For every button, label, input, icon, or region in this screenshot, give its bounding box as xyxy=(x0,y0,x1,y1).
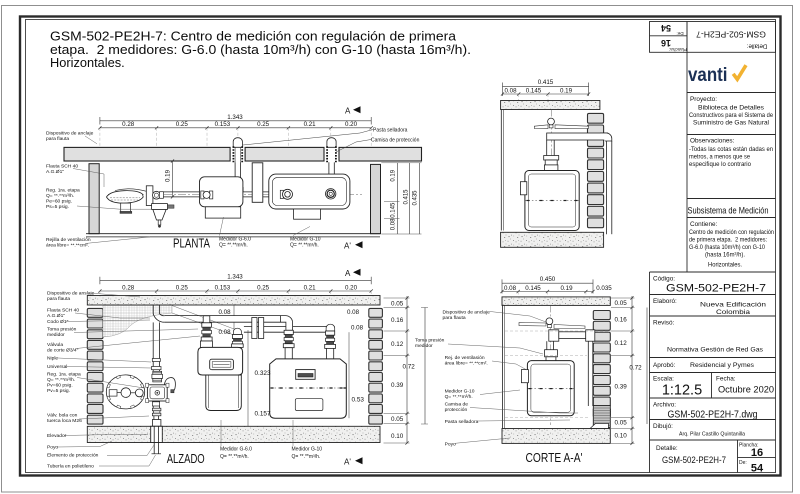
svg-text:0.19: 0.19 xyxy=(391,169,397,181)
svg-text:Rejilla de ventilación: Rejilla de ventilación xyxy=(46,237,91,243)
svg-text:de corte Ø3/4": de corte Ø3/4" xyxy=(47,348,79,354)
svg-text:GSM-502-PE2H-7: GSM-502-PE2H-7 xyxy=(662,455,726,465)
svg-text:Válvula: Válvula xyxy=(47,342,63,348)
svg-text:Elevador: Elevador xyxy=(47,433,67,439)
svg-text:A.G.Ø1": A.G.Ø1" xyxy=(46,169,64,175)
svg-text:0.12: 0.12 xyxy=(615,340,628,347)
svg-text:Pasta selladora: Pasta selladora xyxy=(445,419,479,425)
svg-text:Plancha:: Plancha: xyxy=(669,47,687,52)
svg-text:Colombia: Colombia xyxy=(716,309,750,316)
svg-text:1.343: 1.343 xyxy=(227,274,243,281)
svg-text:0.16: 0.16 xyxy=(391,317,404,324)
svg-text:0.153: 0.153 xyxy=(215,121,231,128)
svg-text:Flauta SCH 40: Flauta SCH 40 xyxy=(47,308,79,314)
svg-text:0.25: 0.25 xyxy=(176,284,189,291)
svg-text:-Todas las cotas están dadas e: -Todas las cotas están dadas en xyxy=(689,146,773,153)
svg-text:1.343: 1.343 xyxy=(227,114,243,121)
svg-text:0.72: 0.72 xyxy=(629,365,642,372)
svg-text:Pasta selladora: Pasta selladora xyxy=(373,128,408,134)
svg-text:0.28: 0.28 xyxy=(122,284,135,291)
svg-text:0.10: 0.10 xyxy=(391,433,404,440)
svg-text:área libre= **.**cm².: área libre= **.**cm². xyxy=(445,361,488,367)
svg-text:A: A xyxy=(345,107,351,116)
svg-text:0.19: 0.19 xyxy=(560,87,573,94)
svg-text:Q= **.**m³/h.: Q= **.**m³/h. xyxy=(220,454,249,460)
svg-text:Q= **.**m³/h.: Q= **.**m³/h. xyxy=(445,394,473,400)
svg-text:Q= **.**m³/h.: Q= **.**m³/h. xyxy=(292,454,321,460)
svg-text:Aprobó:: Aprobó: xyxy=(653,362,676,369)
svg-text:Código:: Código: xyxy=(653,276,675,283)
svg-text:(hasta 16m³/h).: (hasta 16m³/h). xyxy=(705,252,745,259)
svg-text:Toma presión: Toma presión xyxy=(415,338,445,344)
svg-text:ALZADO: ALZADO xyxy=(167,452,205,466)
svg-text:Horizontales.: Horizontales. xyxy=(50,55,125,70)
svg-text:Codo Ø1": Codo Ø1" xyxy=(47,319,69,325)
svg-text:De:: De: xyxy=(676,31,683,36)
svg-text:Pe=60 psig.: Pe=60 psig. xyxy=(46,199,72,205)
svg-text:Q= **.**m³/h.: Q= **.**m³/h. xyxy=(46,193,74,199)
svg-text:Medidor G-10: Medidor G-10 xyxy=(292,447,323,453)
svg-text:0.39: 0.39 xyxy=(615,384,628,391)
svg-text:0.05: 0.05 xyxy=(615,300,628,307)
svg-text:0.415: 0.415 xyxy=(403,189,409,205)
svg-text:CORTE A-A': CORTE A-A' xyxy=(526,451,583,465)
svg-text:de primera etapa. 2 medidores: de primera etapa. 2 medidores: xyxy=(689,237,767,244)
svg-text:Elaboró:: Elaboró: xyxy=(653,298,677,305)
svg-text:Observaciones:: Observaciones: xyxy=(690,138,735,145)
svg-text:tuerca loca M26: tuerca loca M26 xyxy=(47,418,82,424)
svg-text:0.157: 0.157 xyxy=(255,410,271,417)
svg-text:Archivo:: Archivo: xyxy=(653,402,676,409)
svg-text:0.20: 0.20 xyxy=(345,121,358,128)
svg-text:54: 54 xyxy=(751,463,764,475)
svg-text:para flauta: para flauta xyxy=(47,296,70,302)
svg-text:GSM-502-PE2H-7.dwg: GSM-502-PE2H-7.dwg xyxy=(668,410,758,421)
svg-text:metros, a menos que se: metros, a menos que se xyxy=(689,154,750,161)
svg-text:Válv. bola con: Válv. bola con xyxy=(47,413,78,419)
svg-text:Contiene:: Contiene: xyxy=(690,221,718,228)
svg-text:16: 16 xyxy=(661,38,671,48)
svg-text:0.450: 0.450 xyxy=(540,276,556,283)
svg-text:A': A' xyxy=(344,242,351,251)
svg-text:0.05: 0.05 xyxy=(615,420,628,427)
svg-text:medidor: medidor xyxy=(47,332,65,338)
svg-text:Medidor G-6.0: Medidor G-6.0 xyxy=(220,447,252,453)
svg-text:0.72: 0.72 xyxy=(403,364,416,371)
svg-text:Proyecto:: Proyecto: xyxy=(690,96,717,103)
svg-text:0.145: 0.145 xyxy=(526,87,542,94)
svg-text:Centro de medición con regulac: Centro de medición con regulación xyxy=(689,229,774,236)
svg-text:0.145: 0.145 xyxy=(525,285,541,292)
svg-text:0.21: 0.21 xyxy=(304,284,317,291)
svg-text:0.16: 0.16 xyxy=(615,317,628,324)
svg-text:Medidor G-10: Medidor G-10 xyxy=(445,389,475,395)
svg-text:Pv=5 psig.: Pv=5 psig. xyxy=(47,388,70,394)
svg-text:Detalle:: Detalle: xyxy=(746,43,767,49)
svg-text:Subsistema de Medición: Subsistema de Medición xyxy=(688,205,769,216)
svg-text:Q= **.**m³/h.: Q= **.**m³/h. xyxy=(47,377,75,383)
svg-text:PLANTA: PLANTA xyxy=(173,237,211,251)
svg-text:Dibujó:: Dibujó: xyxy=(653,423,673,430)
svg-text:0.25: 0.25 xyxy=(176,121,189,128)
svg-text:0.28: 0.28 xyxy=(122,121,135,128)
svg-text:0.08: 0.08 xyxy=(218,329,231,336)
svg-text:Normativa Gestión de Red Gas: Normativa Gestión de Red Gas xyxy=(667,347,764,354)
svg-text:Suministro de Gas Natural: Suministro de Gas Natural xyxy=(693,120,769,127)
svg-text:Universal: Universal xyxy=(47,364,67,370)
svg-text:Camisa de protección: Camisa de protección xyxy=(371,138,420,144)
svg-text:Reg. 1ra. etapa: Reg. 1ra. etapa xyxy=(46,188,80,194)
svg-text:0.08: 0.08 xyxy=(391,218,397,230)
svg-text:especifique lo contrario: especifique lo contrario xyxy=(689,161,751,168)
svg-text:0.10: 0.10 xyxy=(615,432,628,439)
svg-text:0.435: 0.435 xyxy=(413,190,419,206)
svg-text:Dispositivo de anslaje: Dispositivo de anslaje xyxy=(47,291,95,297)
svg-text:área libre= **.**cm².: área libre= **.**cm². xyxy=(46,243,89,249)
svg-text:0.08: 0.08 xyxy=(504,87,517,94)
svg-text:Escala:: Escala: xyxy=(653,376,674,383)
svg-text:Arq. Pilar Castillo Quintanill: Arq. Pilar Castillo Quintanilla xyxy=(679,432,745,438)
svg-text:para flauta: para flauta xyxy=(443,315,466,321)
svg-text:Toma presión: Toma presión xyxy=(47,327,77,333)
svg-text:Q= **.**m³/h.: Q= **.**m³/h. xyxy=(219,243,248,249)
svg-text:De:: De: xyxy=(739,460,747,466)
svg-text:0.145: 0.145 xyxy=(391,202,397,218)
svg-text:0.08: 0.08 xyxy=(351,324,364,331)
svg-text:0.19: 0.19 xyxy=(560,285,573,292)
svg-text:0.20: 0.20 xyxy=(345,284,358,291)
svg-text:medidor: medidor xyxy=(415,343,433,349)
svg-text:Fecha:: Fecha: xyxy=(716,376,736,383)
svg-text:0.05: 0.05 xyxy=(391,416,404,423)
svg-text:Elemento de protección: Elemento de protección xyxy=(47,453,99,459)
svg-text:A.G.Ø1": A.G.Ø1" xyxy=(47,313,65,319)
svg-text:A: A xyxy=(345,269,351,278)
svg-text:vanti: vanti xyxy=(688,64,728,86)
svg-text:A': A' xyxy=(344,458,351,467)
svg-text:0.39: 0.39 xyxy=(391,382,404,389)
svg-text:0.25: 0.25 xyxy=(257,121,270,128)
svg-text:Revisó:: Revisó: xyxy=(653,320,675,327)
svg-text:Tubería en polietileno: Tubería en polietileno xyxy=(47,464,94,470)
svg-text:protección: protección xyxy=(445,407,468,413)
svg-text:Residencial y Pymes: Residencial y Pymes xyxy=(690,362,755,369)
svg-text:Nueva Edificación: Nueva Edificación xyxy=(700,302,766,309)
svg-text:Niple: Niple xyxy=(47,356,58,362)
svg-text:Horizontales.: Horizontales. xyxy=(708,262,742,269)
svg-text:Constructivos para el Sistema: Constructivos para el Sistema de xyxy=(689,112,773,119)
svg-text:Biblioteca de Detalles: Biblioteca de Detalles xyxy=(698,105,765,112)
svg-text:0.035: 0.035 xyxy=(596,285,612,292)
svg-text:0.08: 0.08 xyxy=(347,309,360,316)
svg-text:0.12: 0.12 xyxy=(391,341,404,348)
svg-text:0.08: 0.08 xyxy=(218,309,231,316)
svg-text:Camisa de: Camisa de xyxy=(445,402,469,408)
svg-text:0.21: 0.21 xyxy=(304,121,317,128)
svg-text:GSM-502-PE2H-7: GSM-502-PE2H-7 xyxy=(666,283,766,295)
svg-text:para flauta: para flauta xyxy=(46,136,69,142)
svg-text:54: 54 xyxy=(661,23,671,33)
svg-text:Poyo: Poyo xyxy=(47,445,58,451)
svg-text:Octubre 2020: Octubre 2020 xyxy=(718,385,774,395)
svg-text:Dispositivo de anclaje: Dispositivo de anclaje xyxy=(46,131,94,137)
svg-text:0.08: 0.08 xyxy=(504,285,517,292)
svg-text:0.153: 0.153 xyxy=(215,284,231,291)
svg-text:Reg. 1ra. etapa: Reg. 1ra. etapa xyxy=(47,372,81,378)
svg-text:Poyo: Poyo xyxy=(445,441,456,447)
svg-text:Ps=5 psig.: Ps=5 psig. xyxy=(46,204,69,210)
svg-text:Q= **.**m³/h.: Q= **.**m³/h. xyxy=(290,243,319,249)
svg-text:GSM-502-PE2H-7: GSM-502-PE2H-7 xyxy=(696,30,766,40)
svg-text:1:12.5: 1:12.5 xyxy=(662,383,702,399)
svg-text:Pv=60 psig.: Pv=60 psig. xyxy=(47,383,73,389)
svg-text:0.323: 0.323 xyxy=(255,370,271,377)
svg-text:Rej. de ventilasión: Rej. de ventilasión xyxy=(445,355,485,361)
svg-text:0.19: 0.19 xyxy=(165,169,172,182)
svg-text:0.53: 0.53 xyxy=(352,397,365,404)
svg-text:0.415: 0.415 xyxy=(538,79,554,86)
svg-text:0.05: 0.05 xyxy=(391,300,404,307)
svg-text:G-6.0 (hasta 10m³/h) con G-10: G-6.0 (hasta 10m³/h) con G-10 xyxy=(689,244,765,251)
svg-text:Dispositivo de anclaje: Dispositivo de anclaje xyxy=(443,310,491,316)
svg-text:0.25: 0.25 xyxy=(257,284,270,291)
svg-text:Detalle:: Detalle: xyxy=(656,445,678,452)
